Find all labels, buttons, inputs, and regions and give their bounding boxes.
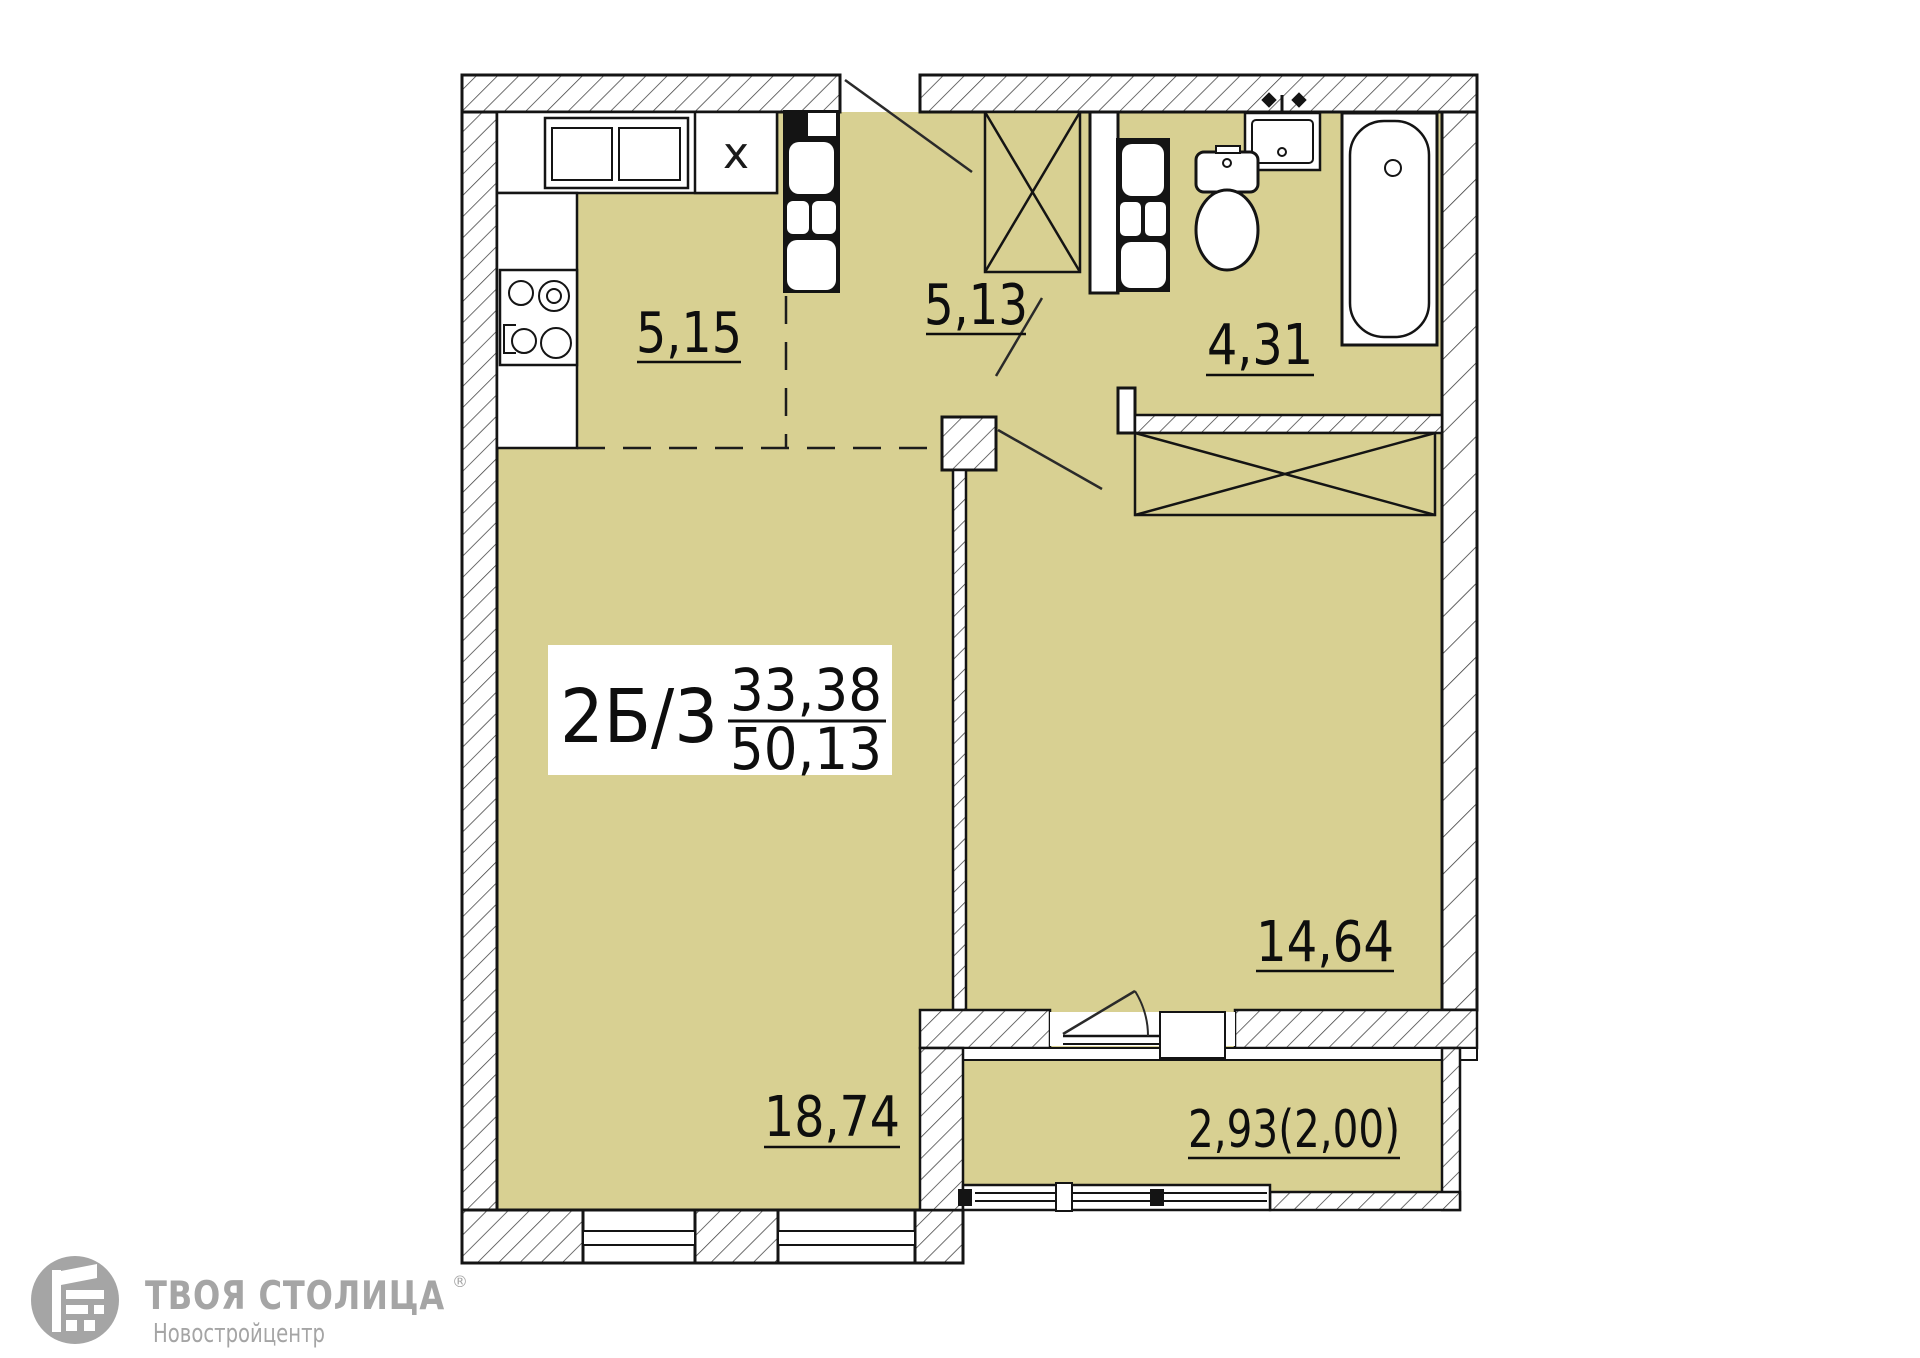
- shaft-bath-cell-1: [1122, 144, 1164, 196]
- wall-left: [462, 112, 497, 1210]
- pillar: [942, 417, 996, 470]
- balcony-window-band: [963, 1185, 1270, 1210]
- unit-number: 2Б/3: [560, 674, 718, 760]
- wall-bottom-pier-2: [695, 1210, 778, 1263]
- balcony-post-1: [958, 1189, 972, 1206]
- shaft-kitchen-cell-4: [812, 201, 836, 234]
- bedroom-wardrobe: [1135, 433, 1435, 515]
- kitchen-cabinet-mark: x: [723, 128, 749, 179]
- shaft-bath-cell-4: [1121, 242, 1166, 288]
- unit-area-lower: 50,13: [730, 715, 882, 783]
- bedroom-bottom-wall-left: [920, 1010, 1050, 1048]
- bathroom-bottom-wall: [1135, 415, 1442, 433]
- balcony-area-label: 2,93(2,00): [1188, 1100, 1400, 1160]
- brand-subtitle: Новостройцентр: [153, 1319, 325, 1349]
- balcony-right-wall: [1442, 1048, 1460, 1210]
- registered-mark: ®: [452, 1272, 468, 1291]
- bedroom-bottom-wall-right: [1235, 1010, 1477, 1048]
- shaft-bath-cell-2: [1120, 202, 1141, 236]
- floor-plan-page: x 5,15 5,13 4,31 14,64 18,74 2,93(2,00) …: [0, 0, 1920, 1358]
- balcony-mullion: [1056, 1183, 1072, 1211]
- toilet-button: [1216, 146, 1240, 153]
- toilet-bowl: [1196, 190, 1258, 270]
- kitchen-area-label: 5,15: [636, 301, 742, 366]
- window-living-1-glazing: [583, 1231, 695, 1245]
- balcony-door-window: [1160, 1012, 1225, 1058]
- shaft-kitchen-cell-3: [787, 201, 809, 234]
- bathroom-area-label: 4,31: [1207, 313, 1313, 378]
- shaft-kitchen-cell-1: [808, 113, 836, 136]
- floor-plan: x 5,15 5,13 4,31 14,64 18,74 2,93(2,00) …: [0, 0, 1920, 1358]
- balcony-post-2: [1150, 1189, 1164, 1206]
- wall-right: [1442, 112, 1477, 1010]
- wall-top-left: [462, 75, 840, 112]
- shaft-kitchen-cell-2: [789, 142, 834, 194]
- wall-top-right: [920, 75, 1477, 112]
- bathroom-left-wall: [1090, 112, 1118, 293]
- balcony-glazing: [958, 1183, 1270, 1211]
- kitchen-sink-basin-1: [552, 128, 612, 180]
- balcony-bottom-wall: [1270, 1192, 1460, 1210]
- brand-logo: ТВОЯ СТОЛИЦА ® Новостройцентр: [31, 1256, 468, 1349]
- partition-living-bedroom: [953, 470, 966, 1010]
- wall-bottom-pier-1: [462, 1210, 583, 1263]
- kitchen-sink-basin-2: [619, 128, 680, 180]
- shaft-kitchen-cell-5: [787, 240, 836, 290]
- ventilation-shaft-bathroom: [1116, 138, 1170, 292]
- ventilation-shaft-kitchen: [783, 110, 840, 293]
- window-living-2-glazing: [778, 1231, 915, 1245]
- brand-name: ТВОЯ СТОЛИЦА: [145, 1274, 445, 1319]
- unit-info-box: 2Б/3 33,38 50,13: [548, 645, 892, 783]
- bedroom-area-label: 14,64: [1256, 910, 1394, 975]
- bathtub-inner: [1350, 121, 1429, 337]
- bathroom-corner-wall: [1118, 388, 1135, 433]
- wall-bottom-pier-3: [915, 1210, 963, 1263]
- hallway-wardrobe: [985, 112, 1080, 272]
- shaft-bath-cell-3: [1145, 202, 1166, 236]
- balcony-left-wall: [920, 1048, 963, 1210]
- hallway-area-label: 5,13: [924, 273, 1028, 338]
- living-room-area-label: 18,74: [764, 1085, 900, 1150]
- unit-area-upper: 33,38: [730, 656, 882, 724]
